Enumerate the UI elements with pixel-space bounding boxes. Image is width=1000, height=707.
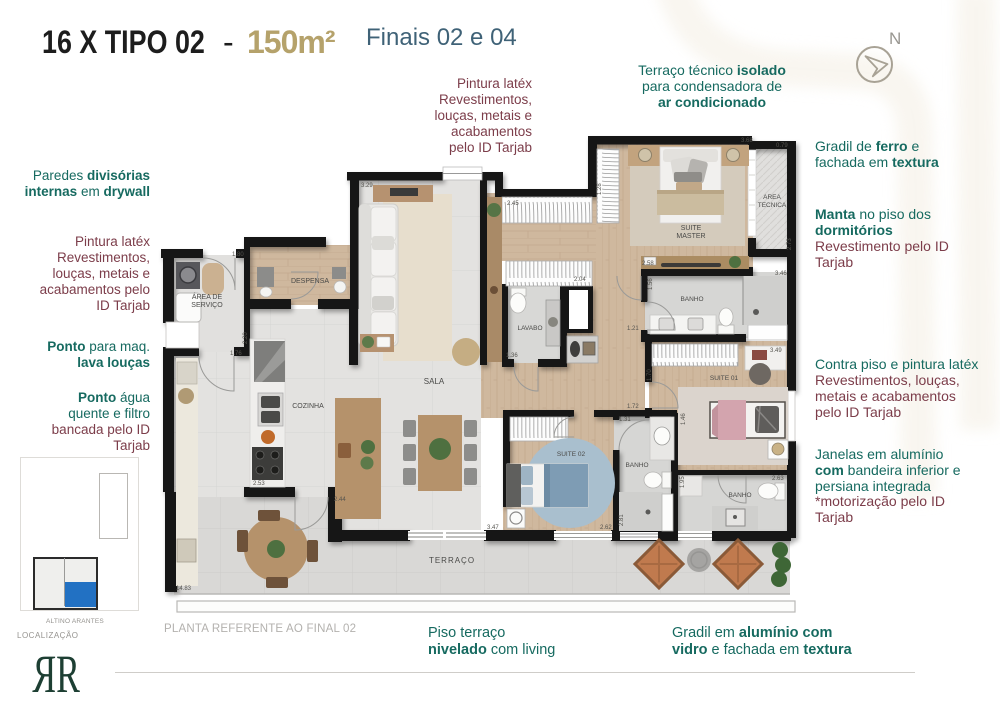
svg-text:2.04: 2.04 <box>574 277 586 283</box>
svg-text:TERRAÇO: TERRAÇO <box>429 556 475 565</box>
svg-text:MASTER: MASTER <box>676 233 705 240</box>
svg-text:1.95: 1.95 <box>680 476 686 488</box>
svg-text:2.73: 2.73 <box>787 238 793 250</box>
svg-text:3.46: 3.46 <box>775 271 787 277</box>
svg-text:3.49: 3.49 <box>770 348 782 354</box>
svg-text:1.21: 1.21 <box>627 326 639 332</box>
svg-text:ÁREA DE: ÁREA DE <box>192 292 223 301</box>
svg-text:0.79: 0.79 <box>776 143 788 149</box>
svg-text:SALA: SALA <box>424 377 445 386</box>
svg-text:COZINHA: COZINHA <box>292 403 324 410</box>
svg-text:BANHO: BANHO <box>728 492 751 499</box>
svg-text:DESPENSA: DESPENSA <box>291 278 329 285</box>
svg-text:1.56: 1.56 <box>648 278 654 290</box>
svg-text:2.62: 2.62 <box>600 525 612 531</box>
svg-text:SUITE: SUITE <box>681 225 702 232</box>
svg-text:1.72: 1.72 <box>627 404 639 410</box>
svg-text:1.31: 1.31 <box>619 417 631 423</box>
svg-text:LAVABO: LAVABO <box>517 325 542 332</box>
svg-text:3.29: 3.29 <box>361 183 373 189</box>
svg-text:1.46: 1.46 <box>681 413 687 425</box>
svg-text:2.81: 2.81 <box>619 514 625 526</box>
svg-text:BANHO: BANHO <box>625 462 648 469</box>
svg-text:14.83: 14.83 <box>176 586 192 592</box>
svg-text:2.58: 2.58 <box>642 261 654 267</box>
svg-text:2.53: 2.53 <box>253 481 265 487</box>
svg-text:BANHO: BANHO <box>680 296 703 303</box>
svg-text:3.47: 3.47 <box>487 525 499 531</box>
svg-text:1.80: 1.80 <box>232 252 244 258</box>
svg-text:SUITE 01: SUITE 01 <box>710 375 739 382</box>
svg-text:1.70: 1.70 <box>647 369 653 381</box>
svg-text:1.76: 1.76 <box>230 351 242 357</box>
svg-text:1.28: 1.28 <box>597 183 603 195</box>
svg-text:3.68: 3.68 <box>741 138 753 144</box>
svg-text:SERVIÇO: SERVIÇO <box>191 302 223 309</box>
svg-text:AREA: AREA <box>763 194 781 201</box>
svg-text:SUITE 02: SUITE 02 <box>557 451 586 458</box>
svg-text:1.36: 1.36 <box>506 353 518 359</box>
svg-text:TECNICA: TECNICA <box>758 202 787 209</box>
svg-text:2.20: 2.20 <box>243 332 249 344</box>
svg-text:2.44: 2.44 <box>334 497 346 503</box>
svg-text:2.45: 2.45 <box>507 201 519 207</box>
svg-text:2.63: 2.63 <box>772 476 784 482</box>
